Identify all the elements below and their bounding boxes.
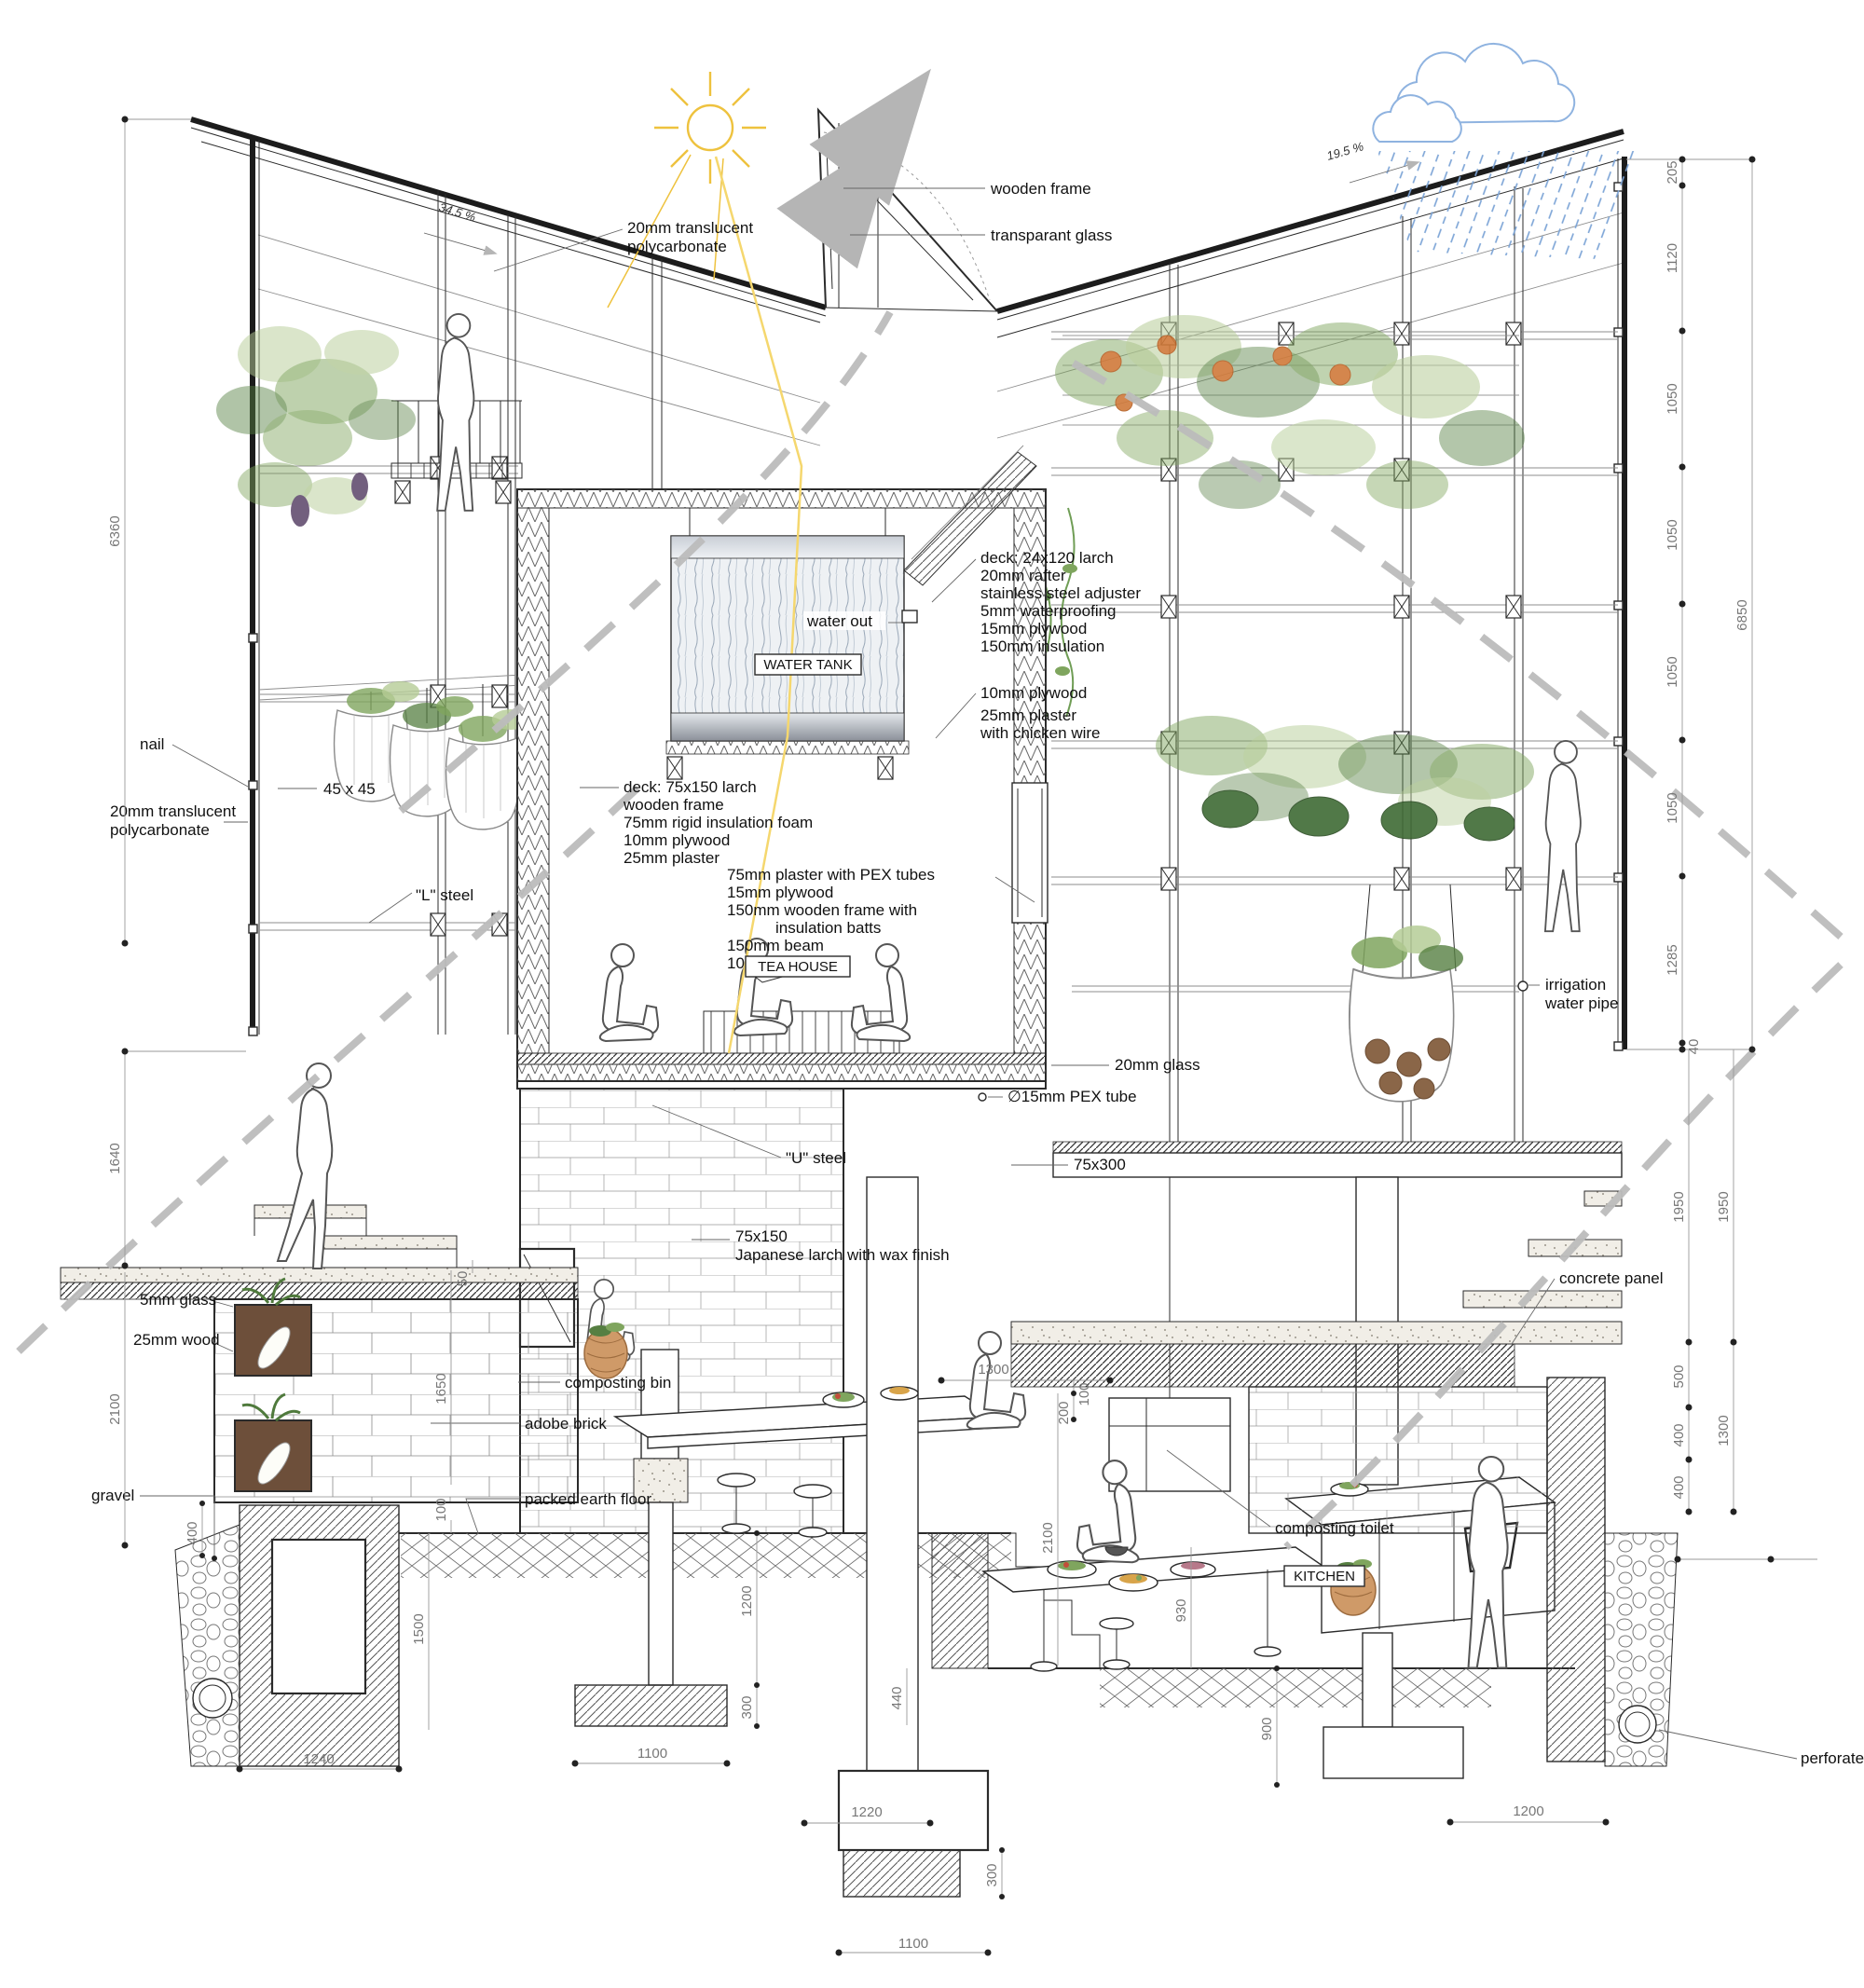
svg-text:1240: 1240 [303, 1751, 334, 1767]
svg-text:2100: 2100 [1040, 1522, 1056, 1553]
plants-melon-shelf [1156, 716, 1534, 841]
section-canvas: wooden frame transparant glass 20mm tran… [0, 0, 1864, 1988]
rain-cloud-icon [1373, 44, 1642, 259]
svg-text:400: 400 [1671, 1475, 1687, 1499]
batten-label: 45 x 45 [323, 780, 376, 798]
svg-text:deck: 24x120 larch: deck: 24x120 larch [980, 549, 1114, 567]
svg-text:1050: 1050 [1665, 792, 1680, 823]
svg-text:440: 440 [889, 1686, 905, 1709]
svg-text:400: 400 [1671, 1423, 1687, 1446]
composting-bin-label: composting bin [565, 1374, 671, 1392]
svg-text:with chicken wire: with chicken wire [980, 724, 1101, 742]
larch-post-label: 75x150 [735, 1227, 788, 1245]
svg-text:10mm plywood: 10mm plywood [624, 831, 730, 849]
svg-text:deck: 75x150 larch: deck: 75x150 larch [624, 778, 757, 796]
plants-top-left [216, 326, 416, 527]
hanging-planter-bag-right [1350, 884, 1463, 1102]
svg-text:1050: 1050 [1665, 656, 1680, 687]
dining-stool [1100, 1618, 1133, 1669]
svg-text:75mm rigid insulation foam: 75mm rigid insulation foam [624, 814, 813, 831]
svg-text:WATER TANK: WATER TANK [763, 657, 852, 673]
svg-text:400: 400 [185, 1521, 200, 1544]
svg-text:water pipe: water pipe [1544, 994, 1618, 1012]
svg-text:300: 300 [739, 1695, 755, 1719]
u-steel-label: "U" steel [786, 1149, 846, 1167]
svg-text:500: 500 [1671, 1364, 1687, 1388]
svg-text:1100: 1100 [637, 1746, 667, 1762]
svg-text:insulation batts: insulation batts [775, 919, 881, 937]
svg-text:5mm waterproofing: 5mm waterproofing [980, 602, 1117, 620]
svg-text:930: 930 [1173, 1598, 1189, 1622]
water-out-label: water out [806, 612, 872, 630]
adobe-brick-label: adobe brick [525, 1415, 607, 1433]
svg-text:100: 100 [433, 1498, 449, 1521]
svg-text:stainless steel adjuster: stainless steel adjuster [980, 584, 1141, 602]
composting-toilet-label: composting toilet [1275, 1519, 1394, 1537]
svg-text:1100: 1100 [898, 1936, 928, 1952]
svg-text:900: 900 [1259, 1717, 1275, 1740]
roof-polycarbonate-label: 20mm translucent [627, 219, 753, 237]
sun-icon [608, 72, 766, 308]
svg-text:1200: 1200 [739, 1585, 755, 1616]
transparent-glass-label: transparant glass [991, 226, 1112, 244]
svg-text:10mm plywood: 10mm plywood [980, 684, 1087, 702]
glass-20-label: 20mm glass [1115, 1056, 1200, 1074]
svg-text:150mm wooden frame with: 150mm wooden frame with [727, 901, 917, 919]
svg-text:wooden frame: wooden frame [623, 796, 724, 814]
person-right-garden [1545, 741, 1581, 931]
exit-arrows [843, 82, 921, 203]
wood-25-label: 25mm wood [133, 1331, 220, 1349]
svg-text:1300: 1300 [978, 1362, 1008, 1378]
roof-deck-spec: deck: 24x120 larch 20mm rafter stainless… [980, 549, 1141, 655]
svg-text:205: 205 [1665, 160, 1680, 184]
svg-text:1120: 1120 [1665, 243, 1680, 273]
person-balcony [437, 314, 473, 511]
svg-text:TEA HOUSE: TEA HOUSE [758, 959, 838, 975]
svg-text:polycarbonate: polycarbonate [627, 238, 727, 255]
svg-text:Japanese larch with wax finish: Japanese larch with wax finish [735, 1246, 950, 1264]
pex-tube-label: ∅15mm PEX tube [1007, 1088, 1137, 1105]
irrigation-label: irrigation [1545, 976, 1606, 994]
svg-text:150mm insulation: 150mm insulation [980, 638, 1104, 655]
svg-text:15mm plywood: 15mm plywood [727, 884, 833, 901]
svg-text:300: 300 [984, 1863, 1000, 1886]
svg-text:1220: 1220 [851, 1804, 882, 1820]
concrete-panel-label: concrete panel [1559, 1269, 1664, 1287]
svg-text:2100: 2100 [107, 1393, 123, 1424]
svg-text:15mm plywood: 15mm plywood [980, 620, 1087, 638]
gravel-label: gravel [91, 1487, 134, 1504]
svg-text:50: 50 [455, 1271, 471, 1287]
l-steel-label: "L" steel [416, 886, 473, 904]
svg-text:20mm rafter: 20mm rafter [980, 567, 1066, 584]
svg-text:1950: 1950 [1716, 1191, 1732, 1222]
svg-text:1285: 1285 [1665, 944, 1680, 975]
svg-text:1200: 1200 [1513, 1803, 1543, 1819]
perforated-pipe-label: perforated pipe [1801, 1749, 1864, 1767]
svg-text:1640: 1640 [107, 1143, 123, 1173]
glass-5-label: 5mm glass [140, 1291, 216, 1309]
svg-text:KITCHEN: KITCHEN [1294, 1569, 1355, 1584]
svg-text:150mm beam: 150mm beam [727, 937, 824, 954]
svg-text:1050: 1050 [1665, 383, 1680, 414]
svg-text:1650: 1650 [433, 1373, 449, 1404]
svg-text:200: 200 [1056, 1401, 1072, 1424]
nail-label: nail [140, 735, 164, 753]
svg-text:75mm plaster with PEX tubes: 75mm plaster with PEX tubes [727, 866, 935, 884]
svg-text:6850: 6850 [1734, 599, 1750, 630]
slope-right-label: 19.5 % [1325, 139, 1365, 163]
svg-text:25mm plaster: 25mm plaster [980, 706, 1076, 724]
svg-text:6360: 6360 [107, 515, 123, 546]
svg-text:1500: 1500 [411, 1613, 427, 1644]
packed-earth-label: packed earth floor [525, 1490, 651, 1508]
wall-plaster-spec: 10mm plywood 25mm plaster with chicken w… [980, 684, 1101, 742]
svg-text:1300: 1300 [1716, 1415, 1732, 1446]
beam-75x300-label: 75x300 [1074, 1156, 1126, 1173]
svg-text:1950: 1950 [1671, 1191, 1687, 1222]
architectural-section-drawing: wooden frame transparant glass 20mm tran… [0, 0, 1864, 1988]
svg-text:1050: 1050 [1665, 519, 1680, 550]
wooden-frame-label: wooden frame [990, 180, 1091, 198]
svg-text:100: 100 [1076, 1382, 1092, 1405]
svg-text:25mm plaster: 25mm plaster [624, 849, 720, 867]
wall-polycarbonate-label: 20mm translucent [110, 802, 236, 820]
person-stairs [278, 1063, 332, 1268]
